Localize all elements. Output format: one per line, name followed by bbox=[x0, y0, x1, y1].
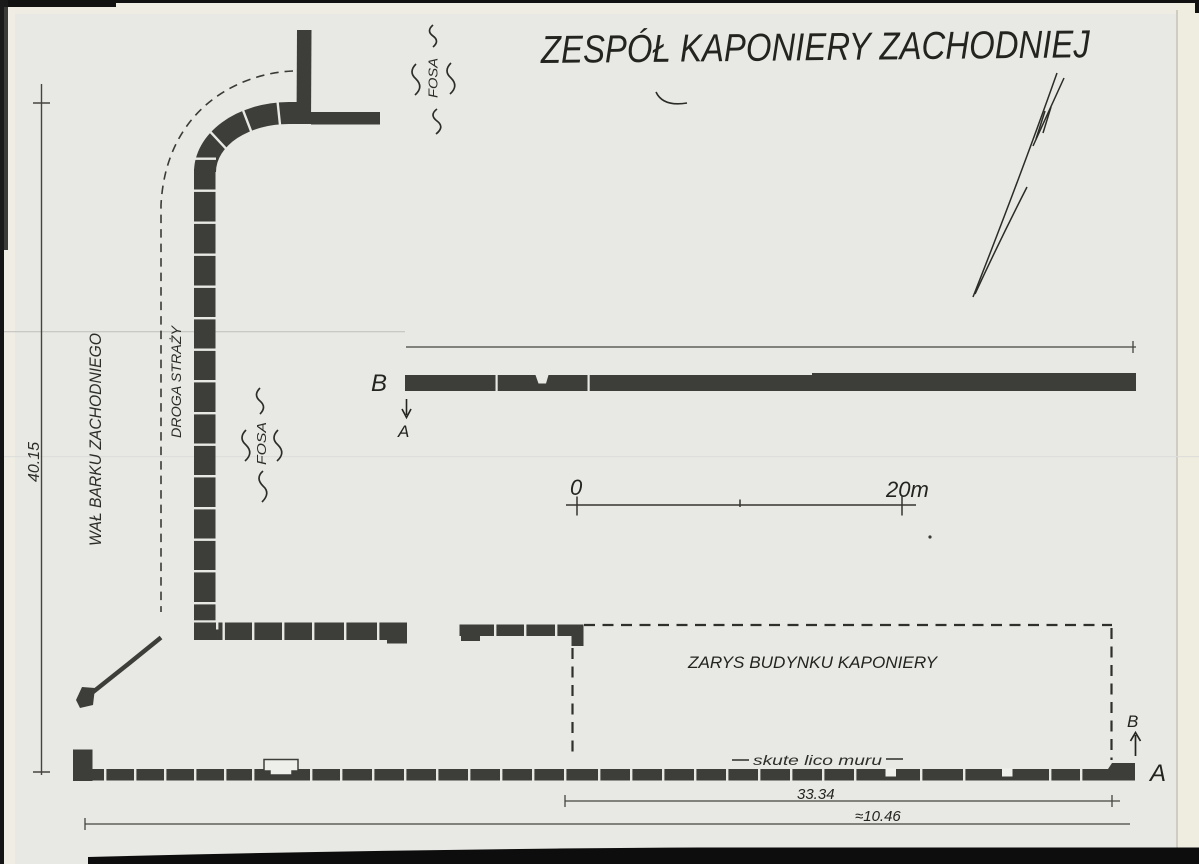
svg-text:FOSA: FOSA bbox=[254, 422, 269, 465]
svg-text:≈10.46: ≈10.46 bbox=[855, 808, 901, 825]
svg-text:B: B bbox=[1127, 712, 1138, 731]
svg-text:WAŁ BARKU ZACHODNIEGO: WAŁ BARKU ZACHODNIEGO bbox=[87, 333, 105, 546]
svg-text:FOSA: FOSA bbox=[426, 58, 441, 98]
svg-text:DROGA STRAŻY: DROGA STRAŻY bbox=[169, 325, 184, 438]
svg-text:A: A bbox=[397, 422, 409, 441]
svg-text:33.34: 33.34 bbox=[797, 786, 835, 803]
svg-text:ZARYS BUDYNKU KAPONIERY: ZARYS BUDYNKU KAPONIERY bbox=[687, 653, 939, 672]
svg-text:20m: 20m bbox=[885, 477, 929, 502]
svg-text:A: A bbox=[1148, 760, 1166, 787]
svg-text:40.15: 40.15 bbox=[26, 442, 43, 482]
svg-text:B: B bbox=[371, 370, 387, 397]
svg-text:skute lico muru: skute lico muru bbox=[753, 752, 882, 768]
svg-text:ZESPÓŁ KAPONIERY ZACHODNIEJ: ZESPÓŁ KAPONIERY ZACHODNIEJ bbox=[540, 23, 1091, 72]
svg-text:0: 0 bbox=[570, 475, 583, 500]
